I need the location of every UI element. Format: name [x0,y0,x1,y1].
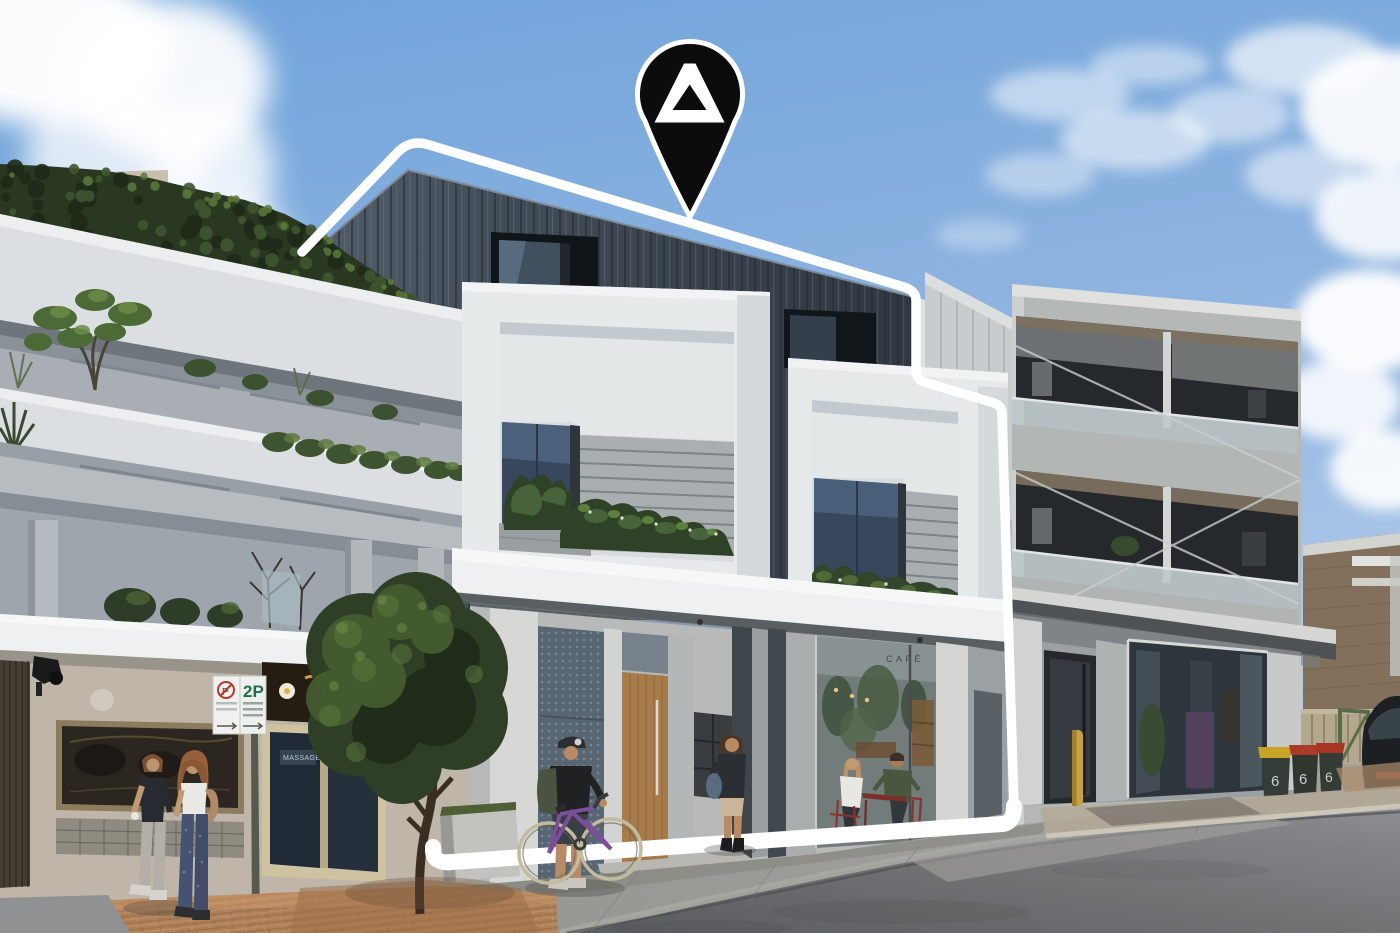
svg-text:6: 6 [1325,769,1333,785]
svg-text:2P: 2P [243,682,264,701]
svg-text:MASSAGE: MASSAGE [283,755,320,762]
svg-text:6: 6 [1299,771,1307,788]
svg-text:CAFÉ: CAFÉ [886,654,924,664]
svg-text:6: 6 [1271,773,1279,790]
